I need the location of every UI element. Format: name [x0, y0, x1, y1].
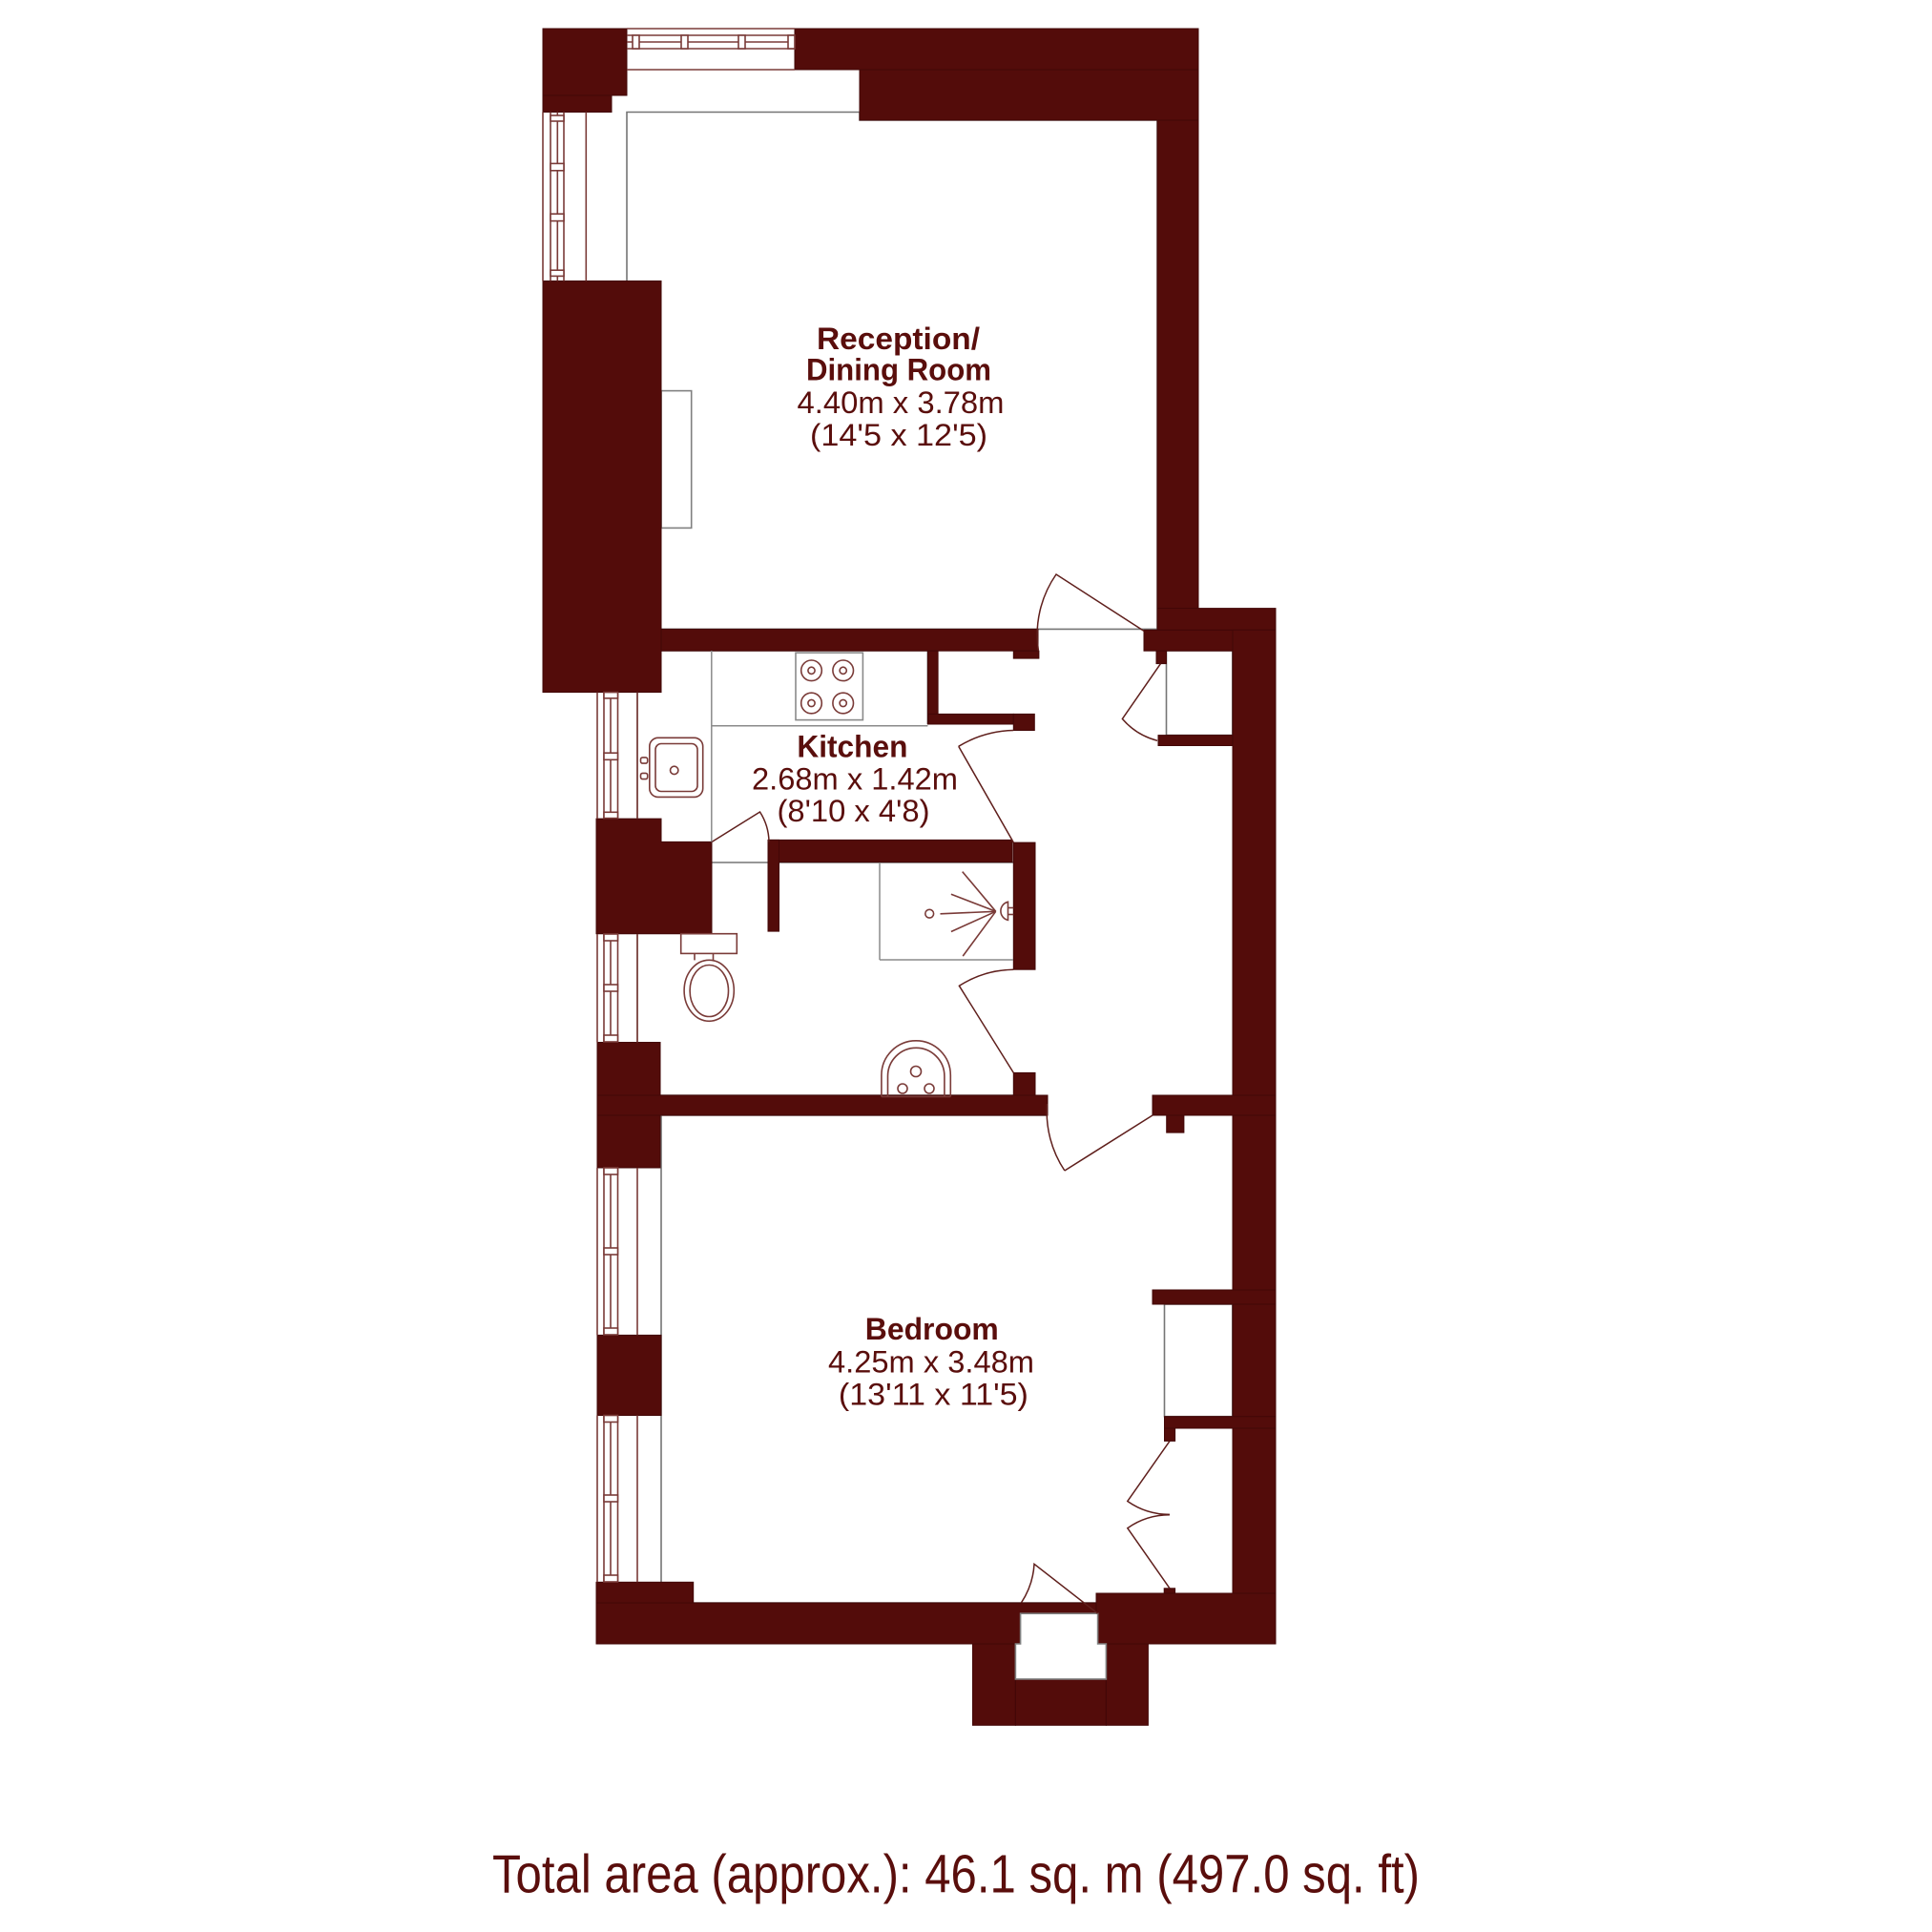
svg-text:Bedroom: Bedroom [865, 1312, 999, 1346]
svg-text:4.25m x 3.48m: 4.25m x 3.48m [828, 1344, 1034, 1379]
svg-text:(13'11 x 11'5): (13'11 x 11'5) [839, 1378, 1028, 1412]
svg-text:Total area (approx.): 46.1 sq.: Total area (approx.): 46.1 sq. m (497.0 … [492, 1844, 1420, 1905]
svg-text:Kitchen: Kitchen [797, 729, 907, 763]
svg-text:Dining Room: Dining Room [806, 352, 991, 386]
svg-text:(8'10 x 4'8): (8'10 x 4'8) [778, 794, 930, 828]
svg-text:Reception/: Reception/ [817, 322, 980, 356]
svg-text:4.40m x 3.78m: 4.40m x 3.78m [798, 385, 1005, 420]
svg-text:2.68m x 1.42m: 2.68m x 1.42m [752, 762, 958, 797]
svg-text:(14'5 x 12'5): (14'5 x 12'5) [810, 418, 987, 452]
